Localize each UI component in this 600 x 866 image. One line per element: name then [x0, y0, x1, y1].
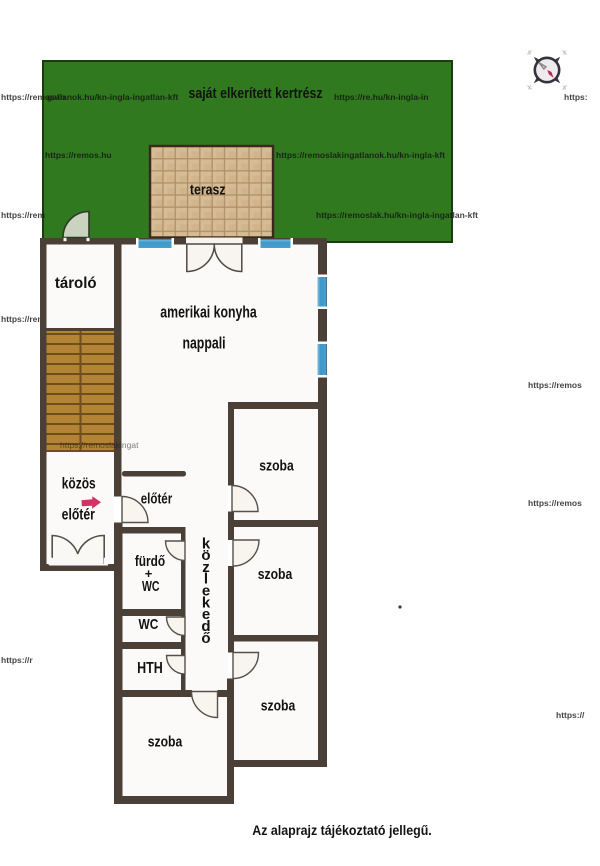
svg-text:https://rem: https://rem: [1, 210, 45, 220]
svg-text:amerikai konyha: amerikai konyha: [160, 303, 257, 322]
svg-text:szoba: szoba: [261, 698, 296, 715]
svg-text:terasz: terasz: [190, 183, 226, 199]
svg-text:https://: https://: [556, 710, 585, 720]
svg-text:saját elkerített kertrész: saját elkerített kertrész: [189, 86, 323, 102]
svg-text:gatlanok.hu/kn-ingla-ingatlan-: gatlanok.hu/kn-ingla-ingatlan-kft: [47, 92, 178, 102]
svg-text:szoba: szoba: [258, 566, 293, 583]
svg-text:https://remoslak.hu/kn-ingla-i: https://remoslak.hu/kn-ingla-ingatlan-kf…: [316, 210, 478, 220]
svg-text:WC: WC: [139, 616, 159, 633]
svg-text:https://remos: https://remos: [528, 380, 582, 390]
svg-text:ő: ő: [201, 630, 210, 647]
svg-text:https://re.hu/kn-ingla-in: https://re.hu/kn-ingla-in: [334, 92, 428, 102]
svg-text:közös: közös: [62, 476, 96, 493]
svg-text:https://r: https://r: [1, 655, 33, 665]
svg-text:szoba: szoba: [148, 734, 183, 751]
svg-text:https://remos.hu: https://remos.hu: [45, 150, 112, 160]
svg-text:Az alaprajz tájékoztató jelleg: Az alaprajz tájékoztató jellegű.: [252, 822, 432, 838]
svg-text:HTH: HTH: [137, 660, 163, 677]
svg-text:előtér: előtér: [141, 492, 173, 508]
svg-text:https://remos: https://remos: [528, 498, 582, 508]
svg-text:https://remoslakingat: https://remoslakingat: [60, 440, 139, 450]
svg-text:https://remoslakingatlanok.hu/: https://remoslakingatlanok.hu/kn-ingla-k…: [276, 150, 445, 160]
svg-text:tároló: tároló: [55, 275, 97, 292]
svg-text:WC: WC: [142, 579, 160, 595]
svg-text:szoba: szoba: [259, 458, 294, 475]
svg-text:nappali: nappali: [182, 334, 225, 353]
svg-text:előtér: előtér: [62, 507, 95, 524]
svg-text:https:: https:: [564, 92, 588, 102]
